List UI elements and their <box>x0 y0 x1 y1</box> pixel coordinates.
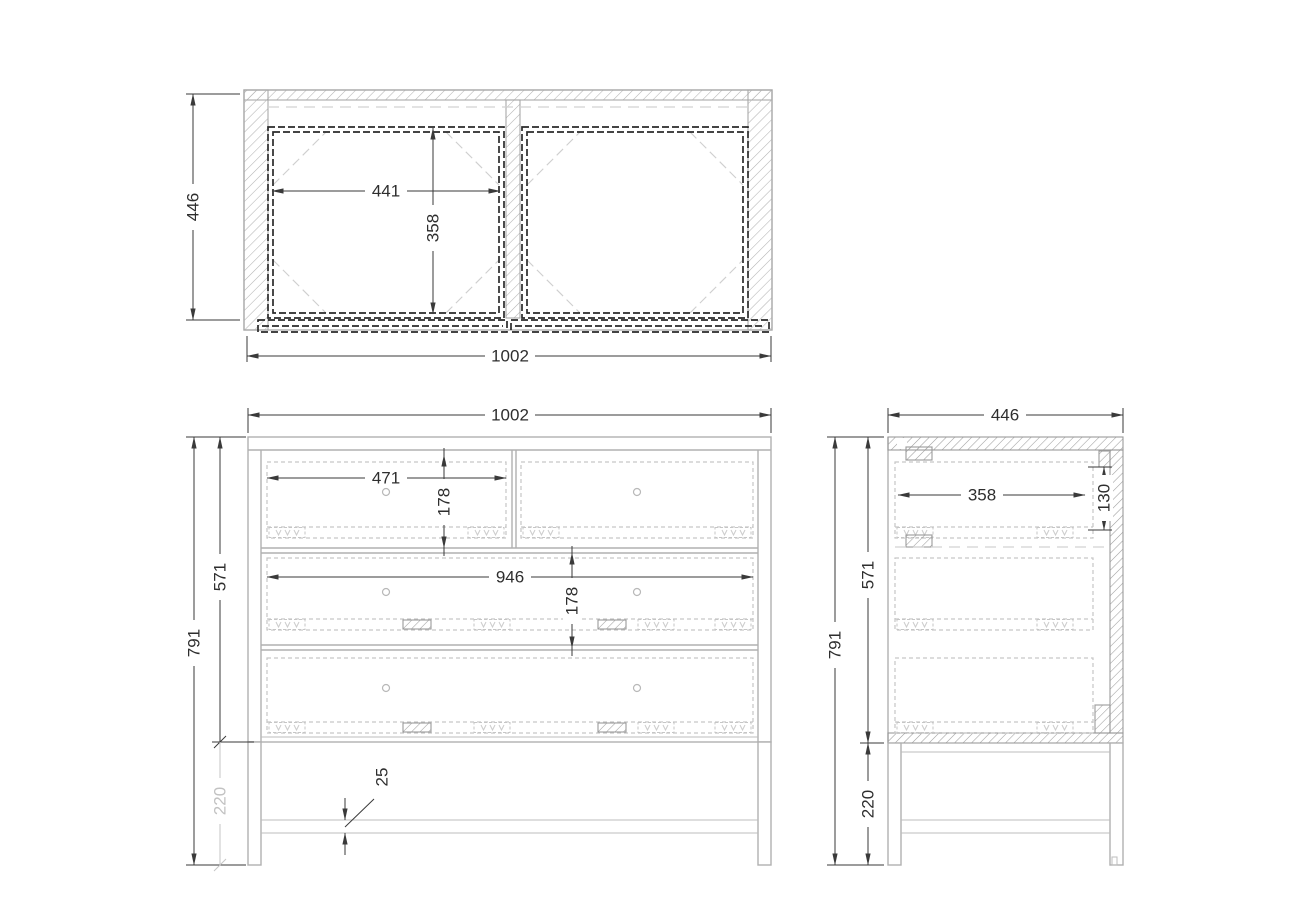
drawing-canvas: 446 441 358 1002 <box>0 0 1300 919</box>
top-view-left-side-panel <box>244 90 268 330</box>
dim-side-drawer-depth-label: 358 <box>968 486 996 505</box>
side-drawer-bottom <box>895 658 1093 733</box>
top-view-back-panel <box>244 90 772 100</box>
dim-top-width: 1002 <box>247 336 771 366</box>
side-bottom-panel <box>888 733 1123 743</box>
dim-side-base-height: 220 <box>859 743 878 865</box>
side-back-bottom-block <box>1095 705 1110 733</box>
dim-side-depth-label: 446 <box>991 406 1019 425</box>
dim-front-width: 1002 <box>248 406 771 434</box>
dim-side-overall-height-label: 791 <box>826 631 845 659</box>
top-view-right-side-panel <box>748 90 772 330</box>
dim-side-drawer-depth: 358 <box>898 486 1085 505</box>
top-view: 446 441 358 1002 <box>184 90 773 366</box>
dim-top-drawer-depth-label: 358 <box>424 214 443 242</box>
side-back-leg <box>1110 743 1123 865</box>
dim-side-base-height-label: 220 <box>859 790 878 818</box>
dim-top-height: 446 <box>184 94 241 320</box>
front-left-leg <box>248 742 261 865</box>
dim-front-top-drawer-height-label: 178 <box>435 488 454 516</box>
side-back-rail-block <box>1099 451 1110 467</box>
dim-top-width-label: 1002 <box>491 347 529 366</box>
dim-front-width-label: 1002 <box>491 406 529 425</box>
dim-front-top-drawer-width-label: 471 <box>372 469 400 488</box>
dim-side-drawer-back-height: 130 <box>1088 467 1114 530</box>
dim-front-base-height: 220 <box>211 742 230 871</box>
side-drawer-middle <box>895 558 1093 630</box>
dim-side-depth: 446 <box>888 406 1123 434</box>
side-front-rail-block <box>906 447 932 460</box>
dim-front-wide-drawer-height-label: 178 <box>563 587 582 615</box>
dim-top-height-label: 446 <box>184 193 203 221</box>
dim-front-rail-thickness: 25 <box>345 768 392 855</box>
dim-front-rail-thickness-label: 25 <box>373 768 392 787</box>
dim-top-drawer-width-label: 441 <box>372 182 400 201</box>
dim-front-wide-drawer-width-label: 946 <box>496 568 524 587</box>
dim-side-carcass-height-label: 571 <box>859 561 878 589</box>
front-carcass <box>248 437 771 742</box>
front-view: 1002 471 178 946 178 <box>185 406 772 872</box>
dim-front-base-height-label: 220 <box>211 787 230 815</box>
dim-side-drawer-back-height-label: 130 <box>1095 484 1114 512</box>
dim-front-overall-height-label: 791 <box>185 629 204 657</box>
dim-front-carcass-height-label: 571 <box>211 563 230 591</box>
side-view: 446 358 130 571 791 <box>826 406 1124 866</box>
front-right-leg <box>758 742 771 865</box>
side-runner-rail-block <box>906 535 932 547</box>
top-view-center-divider <box>506 100 520 318</box>
dim-side-carcass-height: 571 <box>827 437 884 743</box>
furniture-drawing-svg: 446 441 358 1002 <box>0 0 1300 919</box>
side-front-leg <box>888 743 901 865</box>
